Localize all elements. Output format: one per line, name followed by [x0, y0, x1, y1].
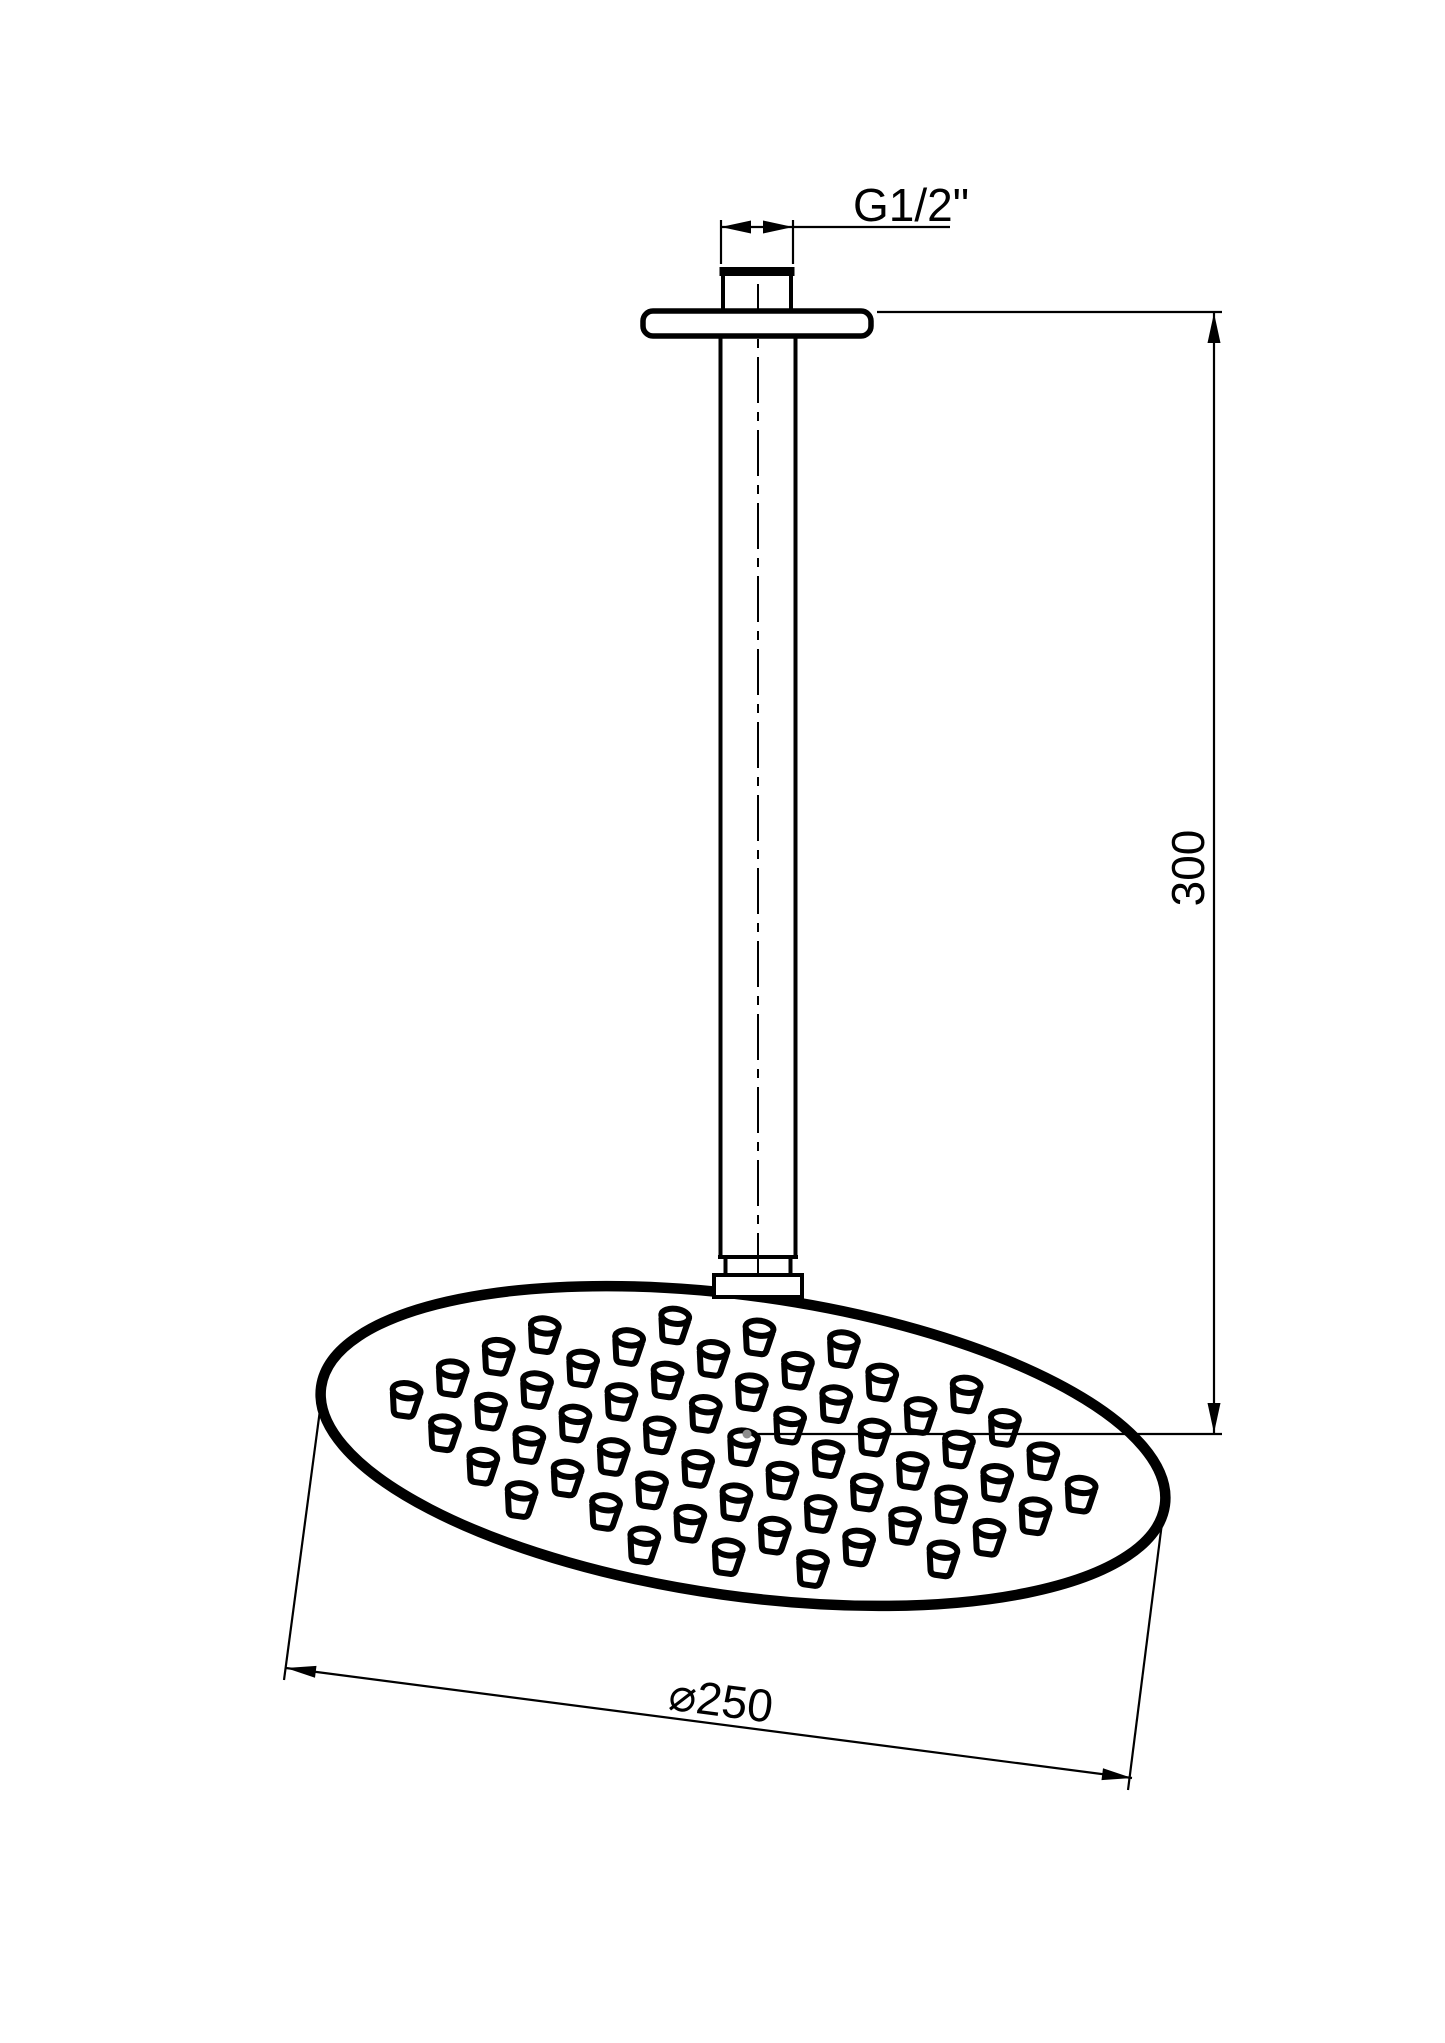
- nozzle: [865, 1364, 897, 1401]
- nozzle: [504, 1482, 536, 1519]
- nozzle: [673, 1505, 705, 1542]
- ceiling-flange: [643, 311, 871, 336]
- nozzle: [972, 1519, 1004, 1556]
- nozzle: [926, 1541, 958, 1578]
- nozzle: [719, 1484, 751, 1521]
- nozzle: [650, 1362, 682, 1399]
- nozzle: [711, 1539, 743, 1576]
- nozzle: [520, 1372, 552, 1409]
- nozzle: [988, 1409, 1020, 1446]
- nozzle: [903, 1398, 935, 1435]
- arrow-left-icon: [721, 221, 751, 234]
- nozzle: [474, 1393, 506, 1430]
- nozzle: [481, 1338, 513, 1375]
- nozzle: [773, 1407, 805, 1444]
- nozzle: [849, 1474, 881, 1511]
- nozzle: [781, 1352, 813, 1389]
- head-diameter-label: ⌀250: [666, 1668, 776, 1733]
- nozzle: [803, 1496, 835, 1533]
- nozzle: [1026, 1443, 1058, 1480]
- nozzle: [527, 1317, 559, 1354]
- nozzle: [466, 1448, 498, 1485]
- nozzle: [627, 1527, 659, 1564]
- nozzle: [596, 1438, 628, 1475]
- nozzle: [428, 1415, 460, 1452]
- nozzle: [1064, 1476, 1096, 1513]
- nozzle: [942, 1431, 974, 1468]
- dimension-height: 300: [743, 312, 1223, 1439]
- nozzle: [895, 1452, 927, 1489]
- nozzle: [688, 1395, 720, 1432]
- nozzle: [558, 1405, 590, 1442]
- nozzle: [757, 1517, 789, 1554]
- nozzle: [566, 1350, 598, 1387]
- drawing-sheet: G1/2" 300 ⌀250: [0, 0, 1445, 2043]
- head-collar: [714, 1275, 802, 1297]
- shower-head-technical-drawing: G1/2" 300 ⌀250: [0, 0, 1445, 2043]
- nozzle: [734, 1374, 766, 1411]
- nozzle: [389, 1381, 421, 1418]
- nozzle: [550, 1460, 582, 1497]
- nozzle: [934, 1486, 966, 1523]
- nozzle: [642, 1417, 674, 1454]
- nozzle: [827, 1331, 859, 1368]
- nozzle: [635, 1472, 667, 1509]
- nozzle: [589, 1493, 621, 1530]
- dimension-thread: G1/2": [721, 179, 969, 264]
- nozzle: [796, 1551, 828, 1588]
- nozzle: [857, 1419, 889, 1456]
- nozzle: [512, 1427, 544, 1464]
- arm-length-label: 300: [1162, 830, 1214, 907]
- arrow-down-icon: [1208, 1403, 1221, 1433]
- nozzle: [765, 1462, 797, 1499]
- nozzle: [949, 1376, 981, 1413]
- arrow-lower-left-icon: [286, 1666, 317, 1678]
- nozzle: [980, 1464, 1012, 1501]
- arrow-lower-right-icon: [1102, 1768, 1133, 1780]
- nozzle: [681, 1450, 713, 1487]
- nozzle: [819, 1386, 851, 1423]
- nozzle: [435, 1360, 467, 1397]
- arrow-up-icon: [1208, 313, 1221, 343]
- nozzle: [658, 1307, 690, 1344]
- nozzle: [742, 1319, 774, 1356]
- nozzle: [696, 1340, 728, 1377]
- nozzle: [612, 1329, 644, 1366]
- arrow-right-icon: [763, 221, 793, 234]
- nozzle: [842, 1529, 874, 1566]
- nozzle: [1018, 1498, 1050, 1535]
- nozzle: [888, 1507, 920, 1544]
- nozzle: [604, 1383, 636, 1420]
- measure-origin-dot: [743, 1430, 752, 1439]
- thread-size-label: G1/2": [853, 179, 969, 231]
- nozzle: [811, 1441, 843, 1478]
